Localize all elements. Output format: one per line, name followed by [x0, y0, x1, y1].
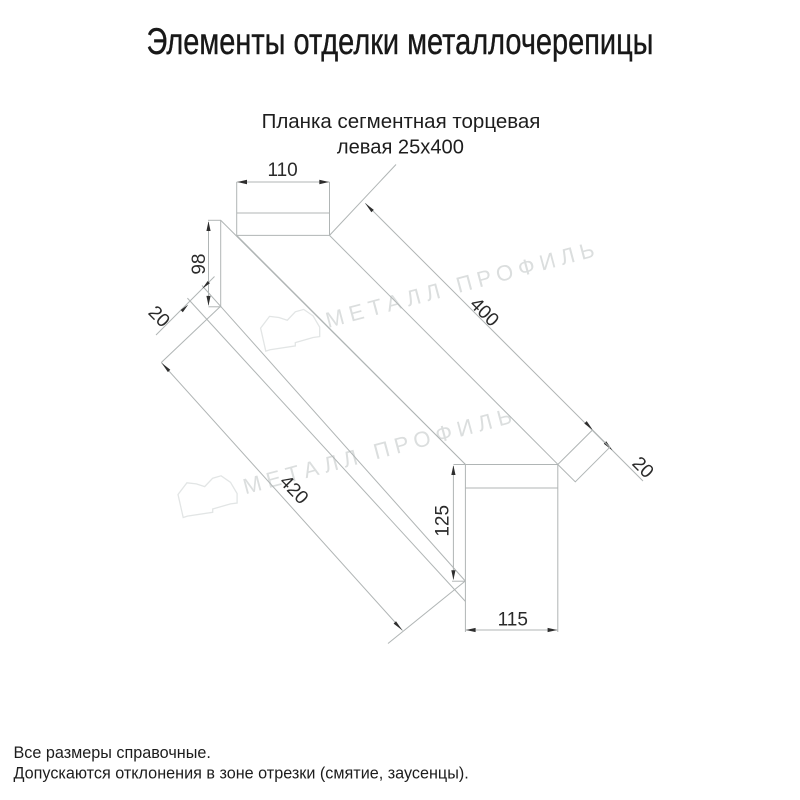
svg-text:Планка сегментная торцевая: Планка сегментная торцевая	[262, 110, 541, 133]
svg-text:Элементы отделки металлочерепи: Элементы отделки металлочерепицы	[147, 20, 654, 62]
svg-text:115: 115	[498, 610, 528, 631]
svg-text:левая 25х400: левая 25х400	[337, 136, 464, 159]
svg-text:Все размеры справочные.: Все размеры справочные.	[14, 744, 211, 762]
svg-text:125: 125	[433, 505, 454, 537]
svg-text:98: 98	[189, 254, 210, 275]
svg-text:110: 110	[267, 160, 297, 181]
svg-text:Допускаются отклонения в зоне: Допускаются отклонения в зоне отрезки (с…	[14, 765, 469, 783]
